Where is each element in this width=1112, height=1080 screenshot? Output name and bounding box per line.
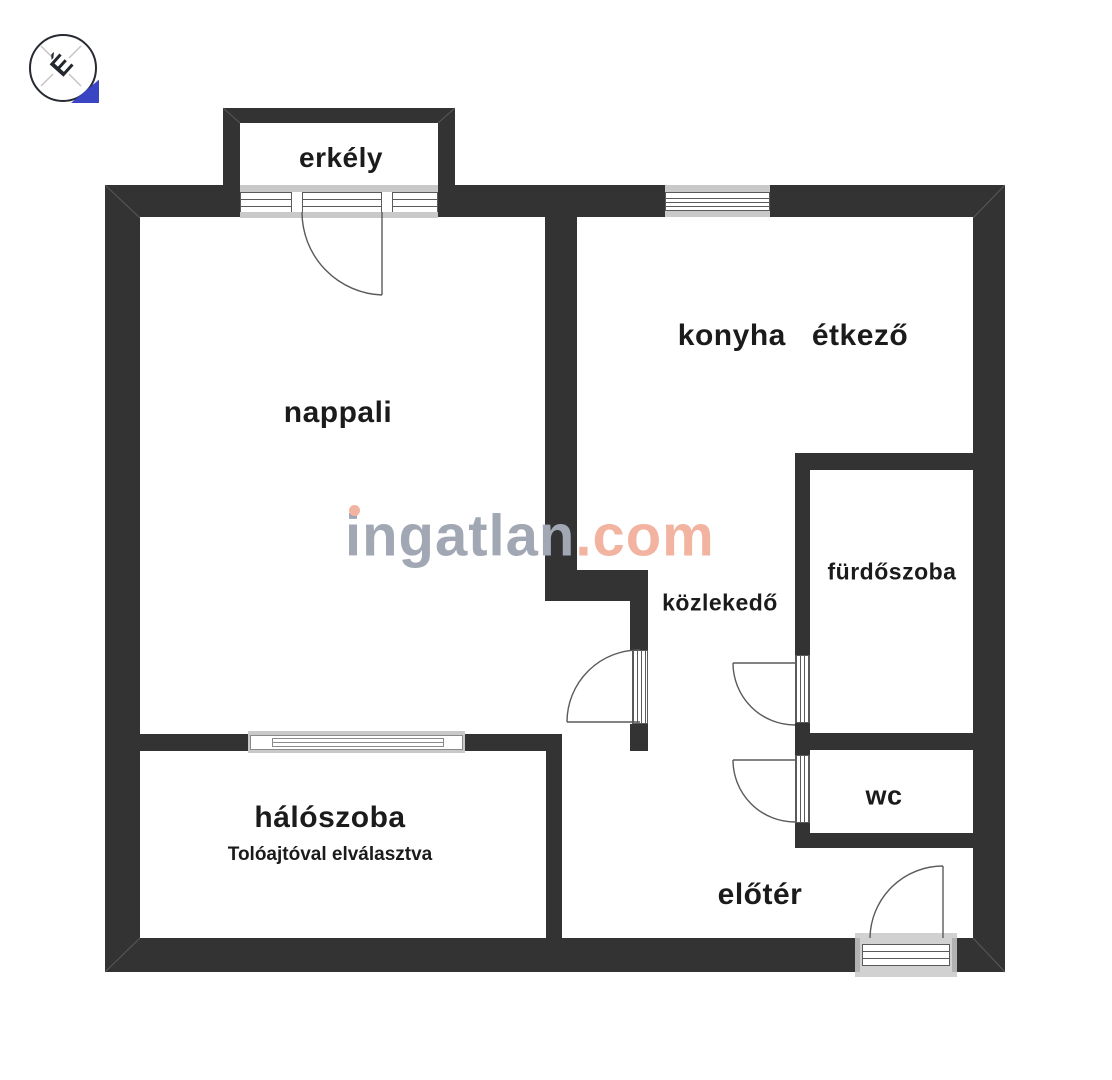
room-label-hallway: közlekedő: [662, 590, 778, 617]
room-label-living: nappali: [284, 396, 393, 430]
room-label-kitchen: konyha: [678, 319, 786, 353]
room-label-dining: étkező: [812, 319, 908, 353]
room-label-bedroom: hálószoba: [254, 801, 405, 835]
watermark-i-dot-icon: [349, 505, 360, 516]
watermark: ingatlan.com: [345, 503, 715, 570]
room-label-wc: wc: [865, 781, 902, 812]
room-label-bathroom: fürdőszoba: [828, 559, 957, 586]
room-label-balcony: erkély: [299, 142, 383, 174]
watermark-tld: .com: [575, 504, 714, 569]
room-label-foyer: előtér: [718, 878, 803, 912]
room-label-bedroom-note: Tolóajtóval elválasztva: [228, 844, 433, 866]
floor-plan: É: [0, 0, 1112, 1080]
room-label-kitchen-dining: konyha étkező: [678, 319, 908, 353]
watermark-name: ingatlan: [345, 504, 575, 569]
